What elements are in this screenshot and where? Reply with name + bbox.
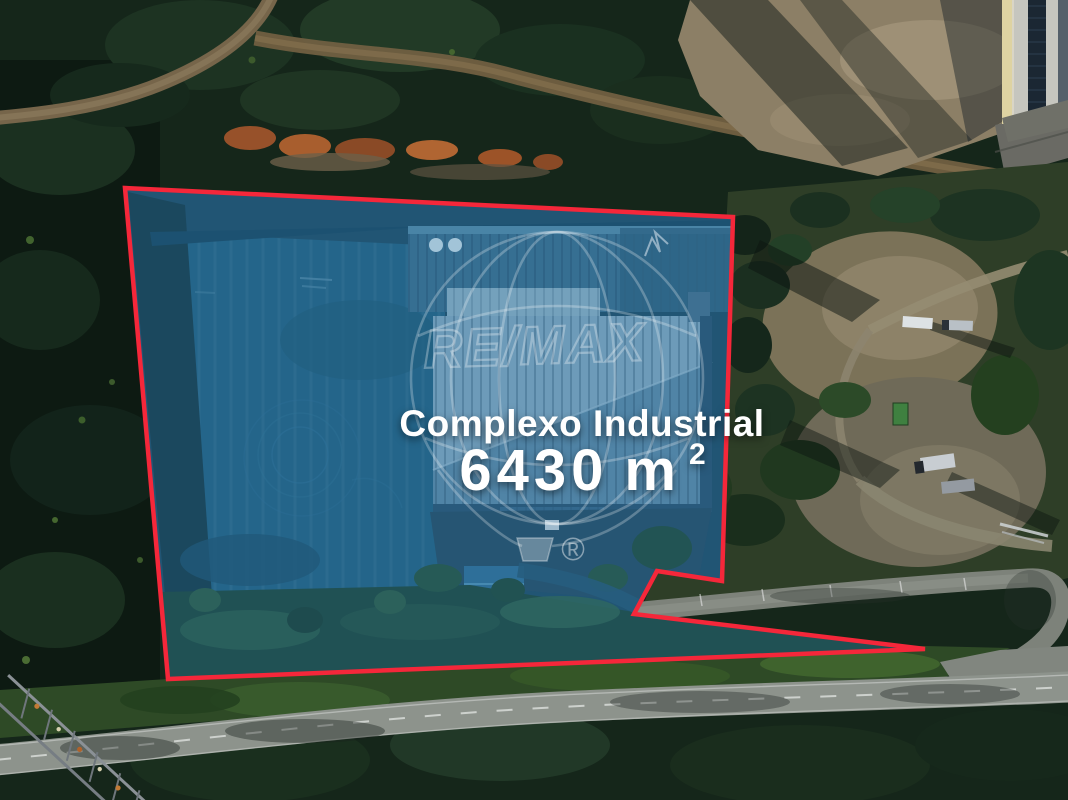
- scene-root: RE/MAX ® Complexo Industrial 6430m2: [0, 0, 1068, 800]
- solar-building: [1002, 0, 1068, 142]
- white-trailer: [902, 316, 933, 329]
- balloon-basket: [517, 538, 553, 561]
- area-exponent: 2: [689, 438, 711, 471]
- area-value: 6430: [459, 438, 608, 503]
- truck: [948, 320, 973, 331]
- listing-area: 6430m2: [459, 438, 710, 503]
- area-unit: m: [624, 438, 681, 503]
- green-container: [893, 403, 908, 425]
- remax-wordmark: RE/MAX: [422, 312, 647, 380]
- registered-mark: ®: [561, 531, 585, 567]
- aerial-listing-photo: RE/MAX ® Complexo Industrial 6430m2: [0, 0, 1068, 800]
